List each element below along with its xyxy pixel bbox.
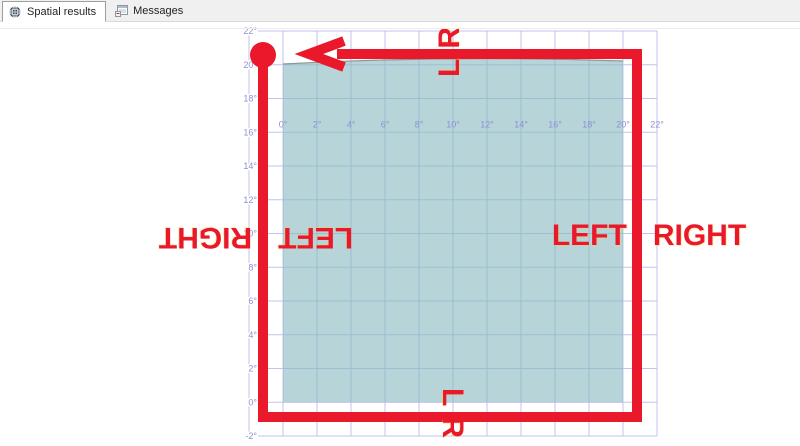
axis-label-x: 4° [347, 120, 356, 130]
annotation-word-left: LEFT [552, 221, 627, 251]
axis-label-y: 6° [248, 296, 257, 306]
annotation-bottom-letters: L R [437, 388, 467, 438]
axis-label-y: 12° [243, 195, 257, 205]
axis-label-y: 2° [248, 364, 257, 374]
axis-label-y: 0° [248, 397, 257, 407]
axis-label-x: 6° [381, 120, 390, 130]
axis-label-y: 18° [243, 94, 257, 104]
axis-label-x: 10° [446, 120, 460, 130]
axis-label-x: 8° [415, 120, 424, 130]
annotation-letter-r: R [437, 416, 467, 438]
annotation-letter-l: L [435, 59, 465, 77]
pane-top-border [0, 28, 800, 29]
annotation-top-letters: L R [435, 27, 465, 77]
axis-label-x: 14° [514, 120, 528, 130]
spatial-canvas[interactable]: 22°20°18°16°14°12°10°8°6°4°2°0°-2°0°2°4°… [0, 0, 800, 446]
axis-label-y: 8° [248, 262, 257, 272]
tab-bar: Spatial results Messages [0, 0, 800, 22]
axis-label-x: 2° [313, 120, 322, 130]
annotation-start-dot [250, 42, 276, 68]
axis-label-x: 22° [650, 120, 664, 130]
messages-icon [115, 5, 128, 17]
annotation-word-left: LEFT [278, 222, 353, 252]
annotation-right-words: LEFT RIGHT [552, 221, 746, 251]
annotation-word-right: RIGHT [653, 221, 746, 251]
axis-label-x: 0° [279, 120, 288, 130]
axis-label-x: 20° [616, 120, 630, 130]
axis-label-x: 16° [548, 120, 562, 130]
tab-label: Spatial results [27, 6, 96, 18]
axis-label-x: 12° [480, 120, 494, 130]
annotation-letter-r: R [435, 27, 465, 49]
spatial-results-pane: 22°20°18°16°14°12°10°8°6°4°2°0°-2°0°2°4°… [0, 0, 800, 446]
axis-label-y: 4° [248, 330, 257, 340]
annotation-left-words: LEFT RIGHT [159, 222, 353, 252]
tab-messages[interactable]: Messages [108, 1, 193, 21]
annotation-word-right: RIGHT [159, 222, 252, 252]
annotation-letter-l: L [437, 388, 467, 406]
globe-icon [9, 6, 22, 18]
axis-label-x: 18° [582, 120, 596, 130]
tab-label: Messages [133, 5, 183, 17]
axis-label-y: 14° [243, 161, 257, 171]
axis-label-y: 16° [243, 127, 257, 137]
tab-spatial-results[interactable]: Spatial results [2, 1, 106, 22]
axis-label-y: -2° [245, 431, 257, 441]
